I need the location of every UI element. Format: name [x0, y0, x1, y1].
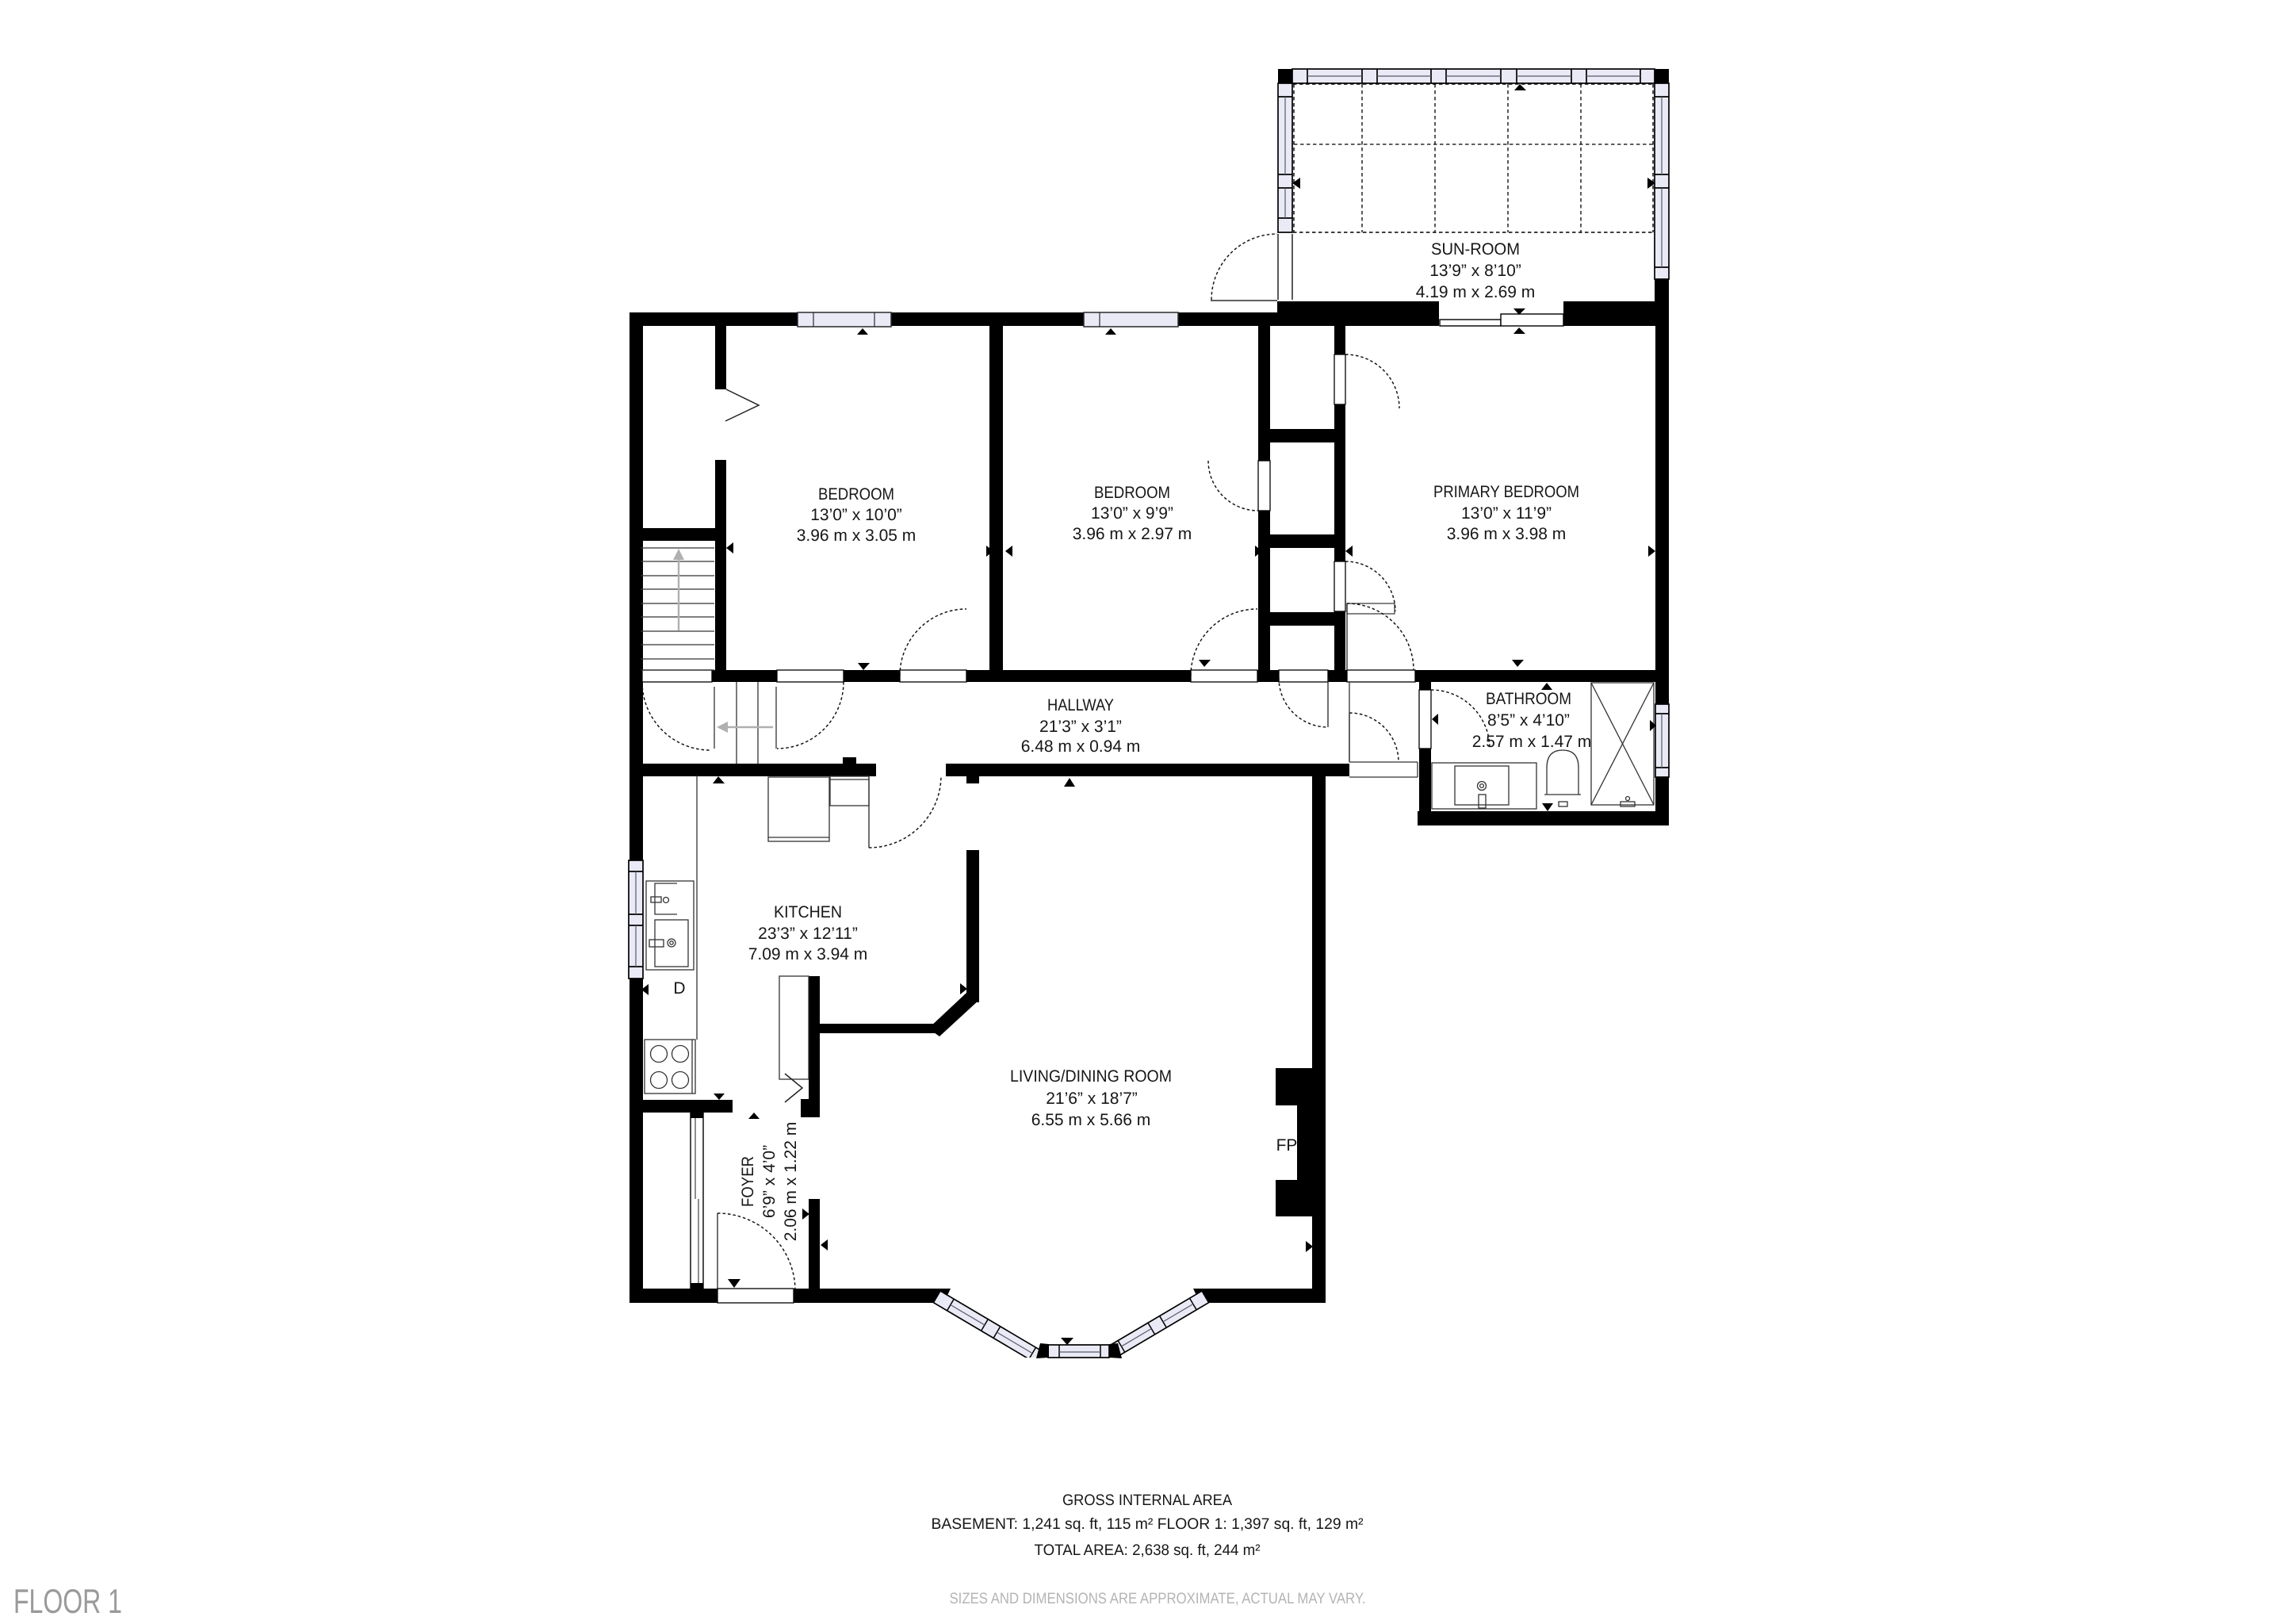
svg-text:PRIMARY BEDROOM: PRIMARY BEDROOM	[1433, 483, 1579, 501]
svg-text:3.96 m x 3.05 m: 3.96 m x 3.05 m	[797, 527, 916, 545]
svg-text:BEDROOM: BEDROOM	[1094, 484, 1170, 502]
svg-text:13’0” x 11’9”: 13’0” x 11’9”	[1461, 504, 1552, 523]
svg-text:3.96 m x 2.97 m: 3.96 m x 2.97 m	[1073, 525, 1192, 543]
svg-text:8’5” x 4’10”: 8’5” x 4’10”	[1487, 711, 1570, 730]
svg-text:2.57 m x 1.47 m: 2.57 m x 1.47 m	[1472, 733, 1592, 751]
svg-text:LIVING/DINING ROOM: LIVING/DINING ROOM	[1010, 1067, 1172, 1086]
svg-text:HALLWAY: HALLWAY	[1047, 696, 1114, 714]
svg-text:13’0” x 10’0”: 13’0” x 10’0”	[810, 506, 902, 524]
svg-text:3.96 m x 3.98 m: 3.96 m x 3.98 m	[1447, 525, 1567, 543]
svg-text:4.19 m x 2.69 m: 4.19 m x 2.69 m	[1416, 283, 1536, 301]
svg-text:23’3” x 12’11”: 23’3” x 12’11”	[758, 925, 858, 943]
svg-text:GROSS INTERNAL AREA: GROSS INTERNAL AREA	[1062, 1492, 1232, 1509]
svg-text:BEDROOM: BEDROOM	[818, 485, 894, 504]
svg-text:KITCHEN: KITCHEN	[774, 903, 842, 921]
svg-text:7.09 m x 3.94 m: 7.09 m x 3.94 m	[748, 945, 868, 963]
svg-text:FOYER: FOYER	[739, 1156, 757, 1207]
svg-text:2.06 m x 1.22 m: 2.06 m x 1.22 m	[782, 1122, 800, 1242]
svg-text:6.48 m x 0.94 m: 6.48 m x 0.94 m	[1021, 737, 1141, 756]
svg-text:21’3” x 3’1”: 21’3” x 3’1”	[1039, 718, 1122, 736]
svg-text:SIZES AND DIMENSIONS ARE APPRO: SIZES AND DIMENSIONS ARE APPROXIMATE, AC…	[950, 1590, 1366, 1607]
svg-text:13’0” x 9’9”: 13’0” x 9’9”	[1091, 504, 1173, 523]
svg-text:SUN-ROOM: SUN-ROOM	[1431, 240, 1520, 259]
svg-text:BASEMENT: 1,241 sq. ft, 115 m²: BASEMENT: 1,241 sq. ft, 115 m² FLOOR 1: …	[932, 1515, 1364, 1533]
svg-text:BATHROOM: BATHROOM	[1486, 690, 1571, 708]
svg-text:6.55 m x 5.66 m: 6.55 m x 5.66 m	[1031, 1111, 1151, 1129]
svg-text:21’6” x 18’7”: 21’6” x 18’7”	[1046, 1090, 1138, 1108]
svg-text:13’9” x 8’10”: 13’9” x 8’10”	[1429, 262, 1521, 280]
svg-text:FP: FP	[1276, 1136, 1298, 1155]
svg-text:6’9” x 4’0”: 6’9” x 4’0”	[760, 1145, 779, 1218]
svg-text:D: D	[673, 979, 685, 998]
svg-text:FLOOR 1: FLOOR 1	[13, 1583, 122, 1621]
svg-text:TOTAL AREA: 2,638 sq. ft, 244: TOTAL AREA: 2,638 sq. ft, 244 m²	[1035, 1542, 1261, 1559]
